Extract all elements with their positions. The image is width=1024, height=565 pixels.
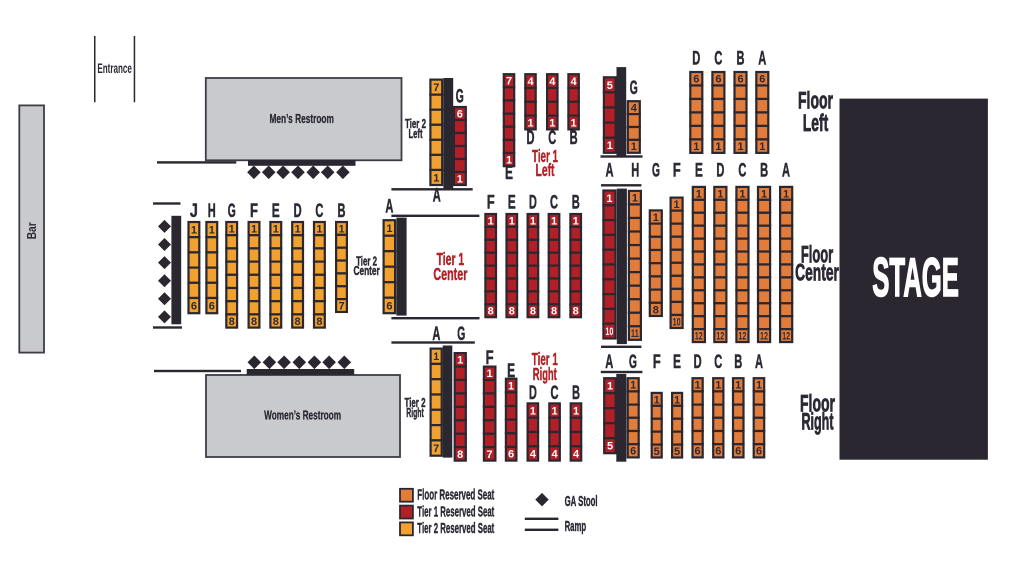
svg-text:6: 6 [191, 301, 197, 313]
svg-text:Bar: Bar [25, 222, 39, 239]
svg-text:C: C [738, 159, 746, 181]
svg-text:12: 12 [716, 331, 724, 343]
svg-text:1: 1 [488, 215, 494, 227]
svg-text:1: 1 [653, 212, 659, 224]
svg-text:4: 4 [631, 103, 638, 115]
svg-text:B: B [572, 192, 580, 214]
svg-text:10: 10 [605, 326, 613, 338]
svg-text:8: 8 [316, 316, 322, 328]
svg-text:Left: Left [803, 110, 829, 137]
svg-text:F: F [653, 351, 661, 373]
svg-text:8: 8 [229, 316, 235, 328]
svg-text:1: 1 [551, 215, 557, 227]
svg-text:B: B [760, 159, 768, 181]
svg-text:6: 6 [630, 446, 636, 458]
svg-text:5: 5 [674, 446, 680, 458]
svg-text:1: 1 [630, 380, 636, 392]
svg-text:4: 4 [573, 448, 580, 460]
svg-text:1: 1 [573, 215, 579, 227]
svg-text:1: 1 [530, 215, 536, 227]
svg-text:J: J [190, 200, 198, 222]
svg-text:1: 1 [606, 193, 612, 205]
svg-text:1: 1 [338, 223, 344, 235]
svg-text:6: 6 [209, 301, 215, 313]
svg-text:7: 7 [433, 82, 439, 94]
svg-text:A: A [758, 48, 766, 70]
svg-text:7: 7 [506, 76, 512, 88]
svg-text:12: 12 [782, 331, 790, 343]
svg-text:A: A [605, 351, 613, 373]
svg-text:F: F [250, 200, 258, 222]
svg-text:A: A [782, 159, 790, 181]
svg-text:6: 6 [386, 300, 392, 312]
svg-text:4: 4 [549, 76, 556, 88]
svg-text:7: 7 [487, 449, 493, 461]
svg-text:1: 1 [674, 199, 680, 211]
svg-text:1: 1 [457, 355, 463, 367]
svg-text:Right: Right [533, 364, 557, 384]
svg-text:6: 6 [693, 74, 699, 86]
svg-text:D: D [716, 159, 724, 181]
svg-text:E: E [507, 360, 515, 382]
svg-text:D: D [692, 48, 700, 70]
svg-text:4: 4 [571, 76, 578, 88]
svg-text:5: 5 [607, 80, 613, 92]
svg-text:1: 1 [783, 188, 789, 200]
svg-text:8: 8 [295, 316, 301, 328]
svg-text:8: 8 [457, 449, 463, 461]
svg-text:B: B [338, 200, 346, 222]
svg-text:Center: Center [795, 260, 839, 287]
svg-text:Ramp: Ramp [565, 519, 587, 535]
svg-text:1: 1 [251, 224, 257, 236]
svg-text:1: 1 [509, 215, 515, 227]
svg-text:E: E [673, 351, 681, 373]
svg-text:1: 1 [457, 173, 463, 185]
svg-text:1: 1 [530, 405, 536, 417]
svg-text:B: B [572, 382, 580, 404]
svg-text:Center: Center [433, 264, 467, 284]
svg-text:4: 4 [530, 448, 537, 460]
svg-text:1: 1 [607, 140, 613, 152]
svg-text:5: 5 [654, 446, 660, 458]
svg-text:Left: Left [536, 160, 555, 180]
svg-text:1: 1 [717, 188, 723, 200]
svg-text:D: D [529, 382, 537, 404]
svg-text:G: G [652, 159, 660, 181]
svg-text:1: 1 [487, 368, 493, 380]
svg-text:1: 1 [695, 380, 701, 392]
svg-text:1: 1 [654, 394, 660, 406]
svg-text:1: 1 [316, 224, 322, 236]
svg-text:A: A [755, 351, 763, 373]
svg-text:6: 6 [715, 446, 721, 458]
svg-text:Right: Right [406, 405, 424, 420]
svg-text:1: 1 [273, 224, 279, 236]
svg-text:1: 1 [693, 141, 699, 153]
svg-text:1: 1 [761, 188, 767, 200]
svg-text:C: C [714, 351, 722, 373]
svg-text:1: 1 [573, 405, 579, 417]
svg-text:8: 8 [551, 306, 557, 318]
svg-text:6: 6 [508, 449, 514, 461]
svg-text:B: B [570, 127, 578, 149]
svg-text:6: 6 [759, 74, 765, 86]
svg-text:A: A [606, 159, 614, 181]
svg-text:1: 1 [735, 380, 741, 392]
svg-text:Right: Right [802, 409, 834, 436]
svg-text:B: B [737, 48, 745, 70]
svg-text:1: 1 [191, 225, 197, 237]
svg-text:6: 6 [695, 446, 701, 458]
svg-text:Tier 1 Reserved Seat: Tier 1 Reserved Seat [417, 504, 494, 520]
svg-text:B: B [734, 351, 742, 373]
svg-text:GA Stool: GA Stool [565, 494, 598, 510]
svg-text:1: 1 [209, 225, 215, 237]
svg-text:E: E [695, 159, 703, 181]
svg-text:12: 12 [695, 331, 703, 343]
svg-text:1: 1 [715, 141, 721, 153]
svg-text:C: C [550, 192, 558, 214]
svg-text:1: 1 [229, 224, 235, 236]
svg-text:E: E [505, 162, 513, 184]
svg-text:8: 8 [488, 306, 494, 318]
svg-text:1: 1 [756, 380, 762, 392]
svg-text:D: D [529, 192, 537, 214]
svg-text:C: C [714, 48, 722, 70]
svg-text:H: H [631, 159, 639, 181]
svg-text:1: 1 [631, 141, 637, 153]
svg-text:12: 12 [760, 331, 768, 343]
svg-text:A: A [385, 196, 393, 218]
svg-text:Men’s Restroom: Men’s Restroom [270, 111, 334, 126]
svg-text:G: G [456, 85, 464, 107]
svg-text:Women’s Restroom: Women’s Restroom [264, 408, 341, 423]
svg-text:6: 6 [735, 446, 741, 458]
svg-text:8: 8 [573, 306, 579, 318]
svg-text:F: F [486, 347, 494, 369]
svg-text:F: F [673, 159, 681, 181]
svg-text:8: 8 [251, 316, 257, 328]
svg-text:7: 7 [433, 443, 439, 455]
svg-text:4: 4 [527, 76, 534, 88]
svg-text:1: 1 [715, 380, 721, 392]
svg-text:G: G [228, 200, 236, 222]
svg-text:C: C [315, 200, 323, 222]
svg-text:12: 12 [738, 331, 746, 343]
svg-text:1: 1 [739, 188, 745, 200]
svg-text:1: 1 [674, 394, 680, 406]
svg-text:1: 1 [295, 224, 301, 236]
svg-text:8: 8 [509, 306, 515, 318]
svg-text:8: 8 [653, 304, 659, 316]
svg-text:G: G [629, 351, 637, 373]
svg-text:G: G [630, 77, 638, 99]
svg-text:H: H [208, 200, 216, 222]
svg-text:1: 1 [632, 193, 638, 205]
svg-text:Tier 2 Reserved Seat: Tier 2 Reserved Seat [417, 521, 494, 537]
svg-text:6: 6 [715, 74, 721, 86]
svg-text:Center: Center [354, 263, 380, 278]
svg-text:F: F [487, 192, 495, 214]
svg-text:1: 1 [551, 405, 557, 417]
svg-text:11: 11 [631, 328, 639, 340]
svg-text:8: 8 [273, 316, 279, 328]
svg-text:10: 10 [673, 316, 681, 328]
svg-text:1: 1 [386, 223, 392, 235]
svg-text:A: A [433, 185, 441, 207]
svg-text:5: 5 [607, 441, 613, 453]
svg-text:1: 1 [607, 381, 613, 393]
svg-text:E: E [272, 200, 280, 222]
svg-text:Left: Left [409, 126, 423, 141]
svg-text:C: C [551, 382, 559, 404]
svg-text:D: D [694, 351, 702, 373]
svg-text:1: 1 [696, 188, 702, 200]
svg-text:1: 1 [759, 141, 765, 153]
svg-text:4: 4 [551, 448, 558, 460]
svg-text:Floor Reserved Seat: Floor Reserved Seat [417, 488, 494, 504]
svg-text:8: 8 [530, 306, 536, 318]
svg-text:1: 1 [508, 380, 514, 392]
svg-text:6: 6 [457, 108, 463, 120]
svg-text:6: 6 [737, 74, 743, 86]
svg-text:7: 7 [338, 300, 344, 312]
svg-text:1: 1 [433, 351, 439, 363]
svg-text:Entrance: Entrance [97, 61, 132, 76]
svg-text:1: 1 [737, 141, 743, 153]
svg-text:D: D [294, 200, 302, 222]
svg-text:E: E [508, 192, 516, 214]
svg-text:1: 1 [433, 172, 439, 184]
svg-text:STAGE: STAGE [872, 246, 959, 308]
svg-text:6: 6 [756, 446, 762, 458]
